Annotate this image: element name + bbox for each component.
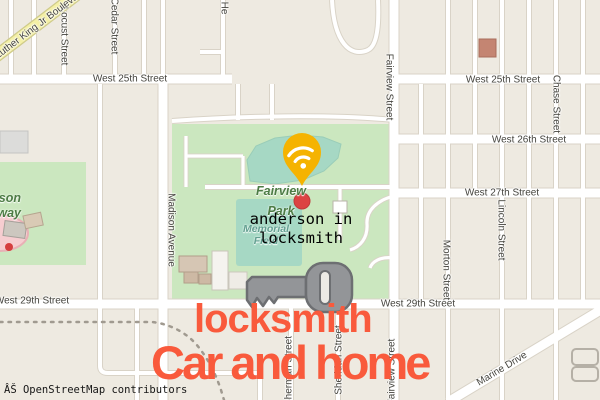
speedway-label: Anderson Speedway	[0, 191, 21, 221]
map-canvas[interactable]: West 25th Street West 25th Street West 2…	[0, 0, 600, 400]
search-query-overlay: anderson in locksmith	[250, 210, 353, 248]
street-label-fairview-top: Fairview Street	[384, 54, 395, 121]
street-label-cedar: Cedar Street	[109, 0, 120, 54]
street-label-w25-right: West 25th Street	[466, 75, 540, 86]
street-label-chase: Chase Street	[551, 75, 562, 133]
brand-text-locksmith: locksmith	[194, 299, 372, 339]
street-label-henry: He	[219, 2, 230, 15]
brand-text-car-and-home: Car and home	[151, 339, 428, 387]
street-label-w29-left: West 29th Street	[0, 296, 69, 307]
osm-attribution: ÂŠ OpenStreetMap contributors	[4, 384, 187, 396]
speedway-line1: Anderson	[0, 191, 21, 206]
building	[3, 221, 27, 239]
poi-dot	[5, 243, 13, 251]
street-label-w27: West 27th Street	[465, 188, 539, 199]
street-label-w26: West 26th Street	[492, 135, 566, 146]
street-label-madison: Madison Avenue	[166, 193, 177, 267]
street-label-lincoln: Lincoln Street	[496, 199, 507, 260]
street-label-morton: Morton Street	[441, 240, 452, 301]
query-line2: locksmith	[250, 229, 353, 248]
park-name-line1: Fairview	[256, 181, 306, 201]
speedway-line2: Speedway	[0, 206, 21, 221]
street-label-w25-left: West 25th Street	[93, 74, 167, 85]
query-line1: anderson in	[250, 210, 353, 229]
